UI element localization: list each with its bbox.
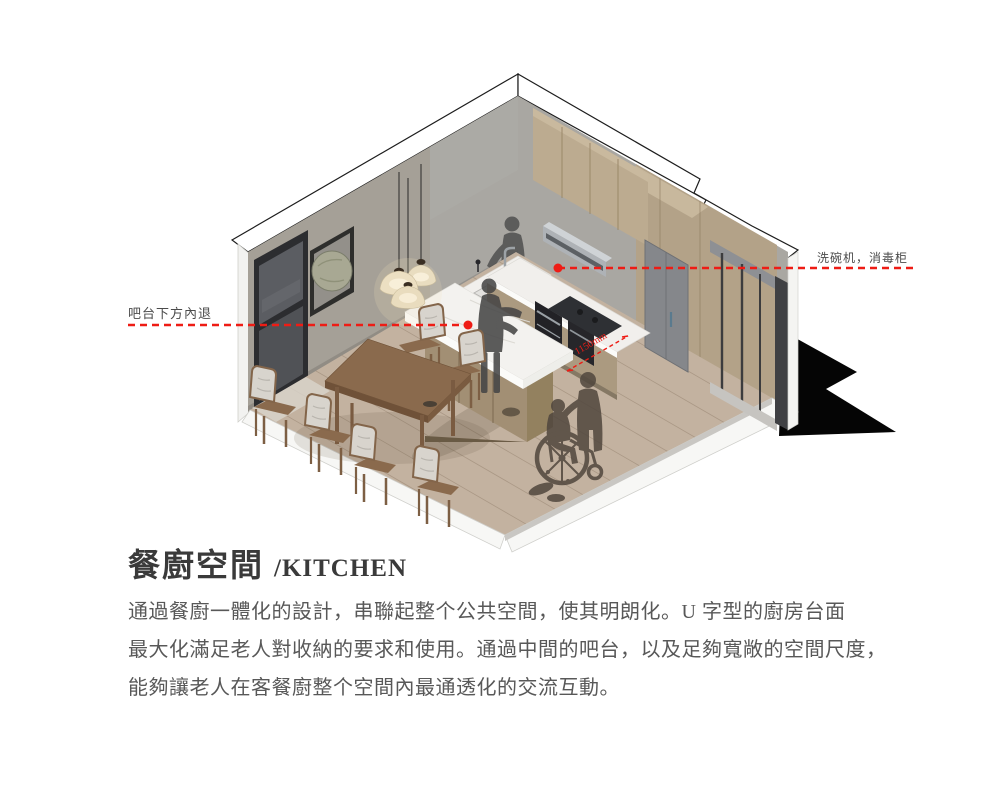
description-line: 最大化滿足老人對收納的要求和使用。通過中間的吧台，以及足夠寬敞的空間尺度， (128, 631, 908, 669)
description-paragraph: 通過餐廚一體化的設計，串聯起整个公共空間，使其明朗化。U 字型的廚房台面 最大化… (128, 593, 908, 707)
callout-bar-recess: 吧台下方內退 (128, 303, 212, 322)
title-block: 餐廚空間/KITCHEN (128, 540, 407, 586)
callout-appliances: 洗碗机，消毒柜 (817, 249, 908, 266)
page: 1150mm 吧台下方內退 洗碗机，消毒柜 餐廚空間/KITCHEN 通過餐廚一… (0, 0, 1000, 803)
description-line: 能夠讓老人在客餐廚整个空間內最通透化的交流互動。 (128, 669, 908, 707)
description-line: 通過餐廚一體化的設計，串聯起整个公共空間，使其明朗化。U 字型的廚房台面 (128, 593, 908, 631)
page-title-zh: 餐廚空間 (128, 547, 264, 583)
island-small-shadow (502, 408, 520, 417)
page-title-en: /KITCHEN (274, 555, 407, 582)
